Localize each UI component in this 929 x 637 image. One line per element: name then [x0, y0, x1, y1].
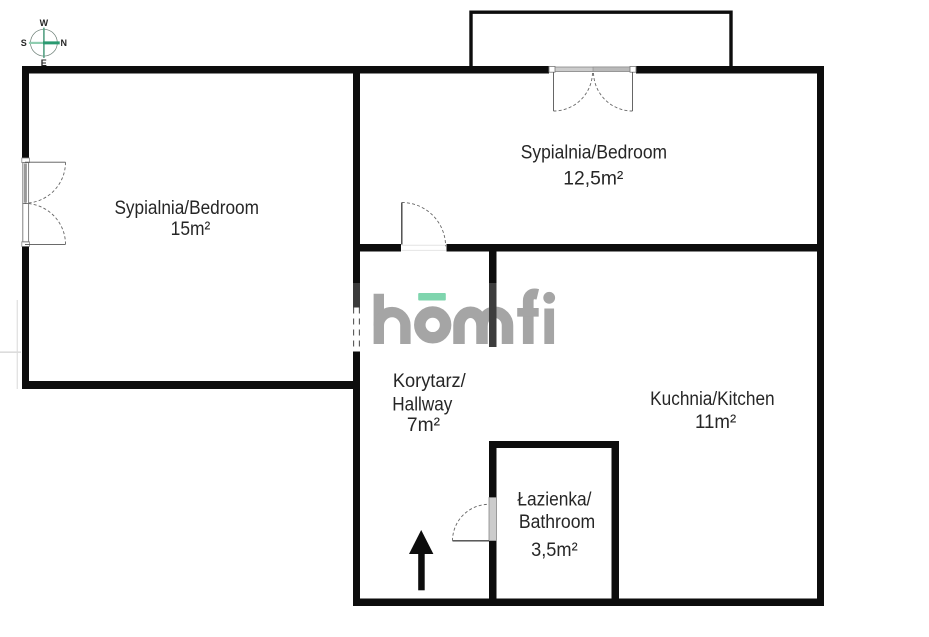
svg-text:S: S — [21, 38, 27, 48]
svg-text:Hallway: Hallway — [392, 394, 452, 415]
svg-text:12,5m²: 12,5m² — [563, 168, 623, 189]
svg-text:11m²: 11m² — [695, 412, 736, 433]
svg-text:E: E — [41, 58, 47, 68]
svg-text:3,5m²: 3,5m² — [531, 540, 578, 561]
svg-text:W: W — [40, 18, 49, 28]
svg-text:15m²: 15m² — [171, 219, 211, 240]
svg-text:N: N — [61, 38, 68, 48]
svg-text:Bathroom: Bathroom — [519, 512, 595, 533]
svg-text:Korytarz/: Korytarz/ — [393, 371, 467, 392]
svg-text:Sypialnia/Bedroom: Sypialnia/Bedroom — [114, 198, 259, 219]
svg-text:Kuchnia/Kitchen: Kuchnia/Kitchen — [650, 389, 775, 410]
svg-text:7m²: 7m² — [407, 415, 440, 436]
svg-text:Sypialnia/Bedroom: Sypialnia/Bedroom — [521, 142, 667, 163]
svg-text:Łazienka/: Łazienka/ — [517, 489, 592, 510]
